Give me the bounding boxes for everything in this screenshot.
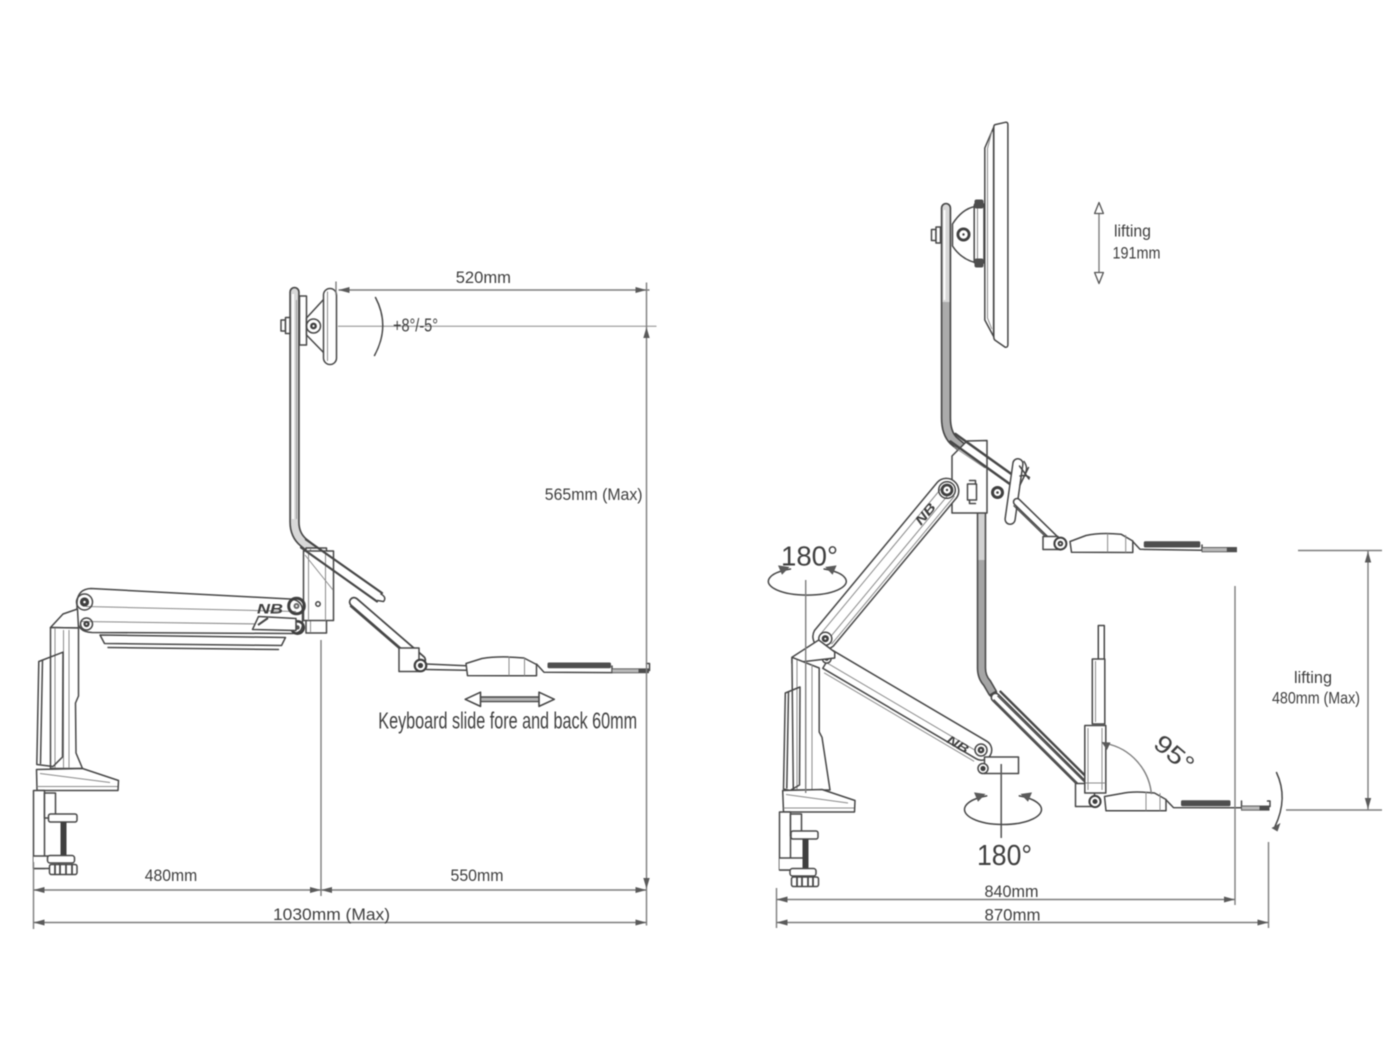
svg-text:180°: 180° [977,840,1032,872]
svg-text:550mm: 550mm [451,866,504,885]
svg-text:840mm: 840mm [985,882,1039,901]
svg-text:480mm (Max): 480mm (Max) [1272,690,1360,708]
svg-text:565mm (Max): 565mm (Max) [545,485,643,504]
svg-text:520mm: 520mm [456,268,511,287]
svg-text:lifting: lifting [1294,669,1332,687]
svg-text:Keyboard slide fore and back 6: Keyboard slide fore and back 60mm [378,708,637,734]
svg-text:lifting: lifting [1114,223,1151,241]
svg-text:1030mm (Max): 1030mm (Max) [273,905,390,924]
svg-text:191mm: 191mm [1113,244,1161,263]
svg-text:+8°/-5°: +8°/-5° [393,316,438,336]
svg-text:480mm: 480mm [145,866,197,885]
svg-text:870mm: 870mm [985,906,1041,925]
svg-text:NB: NB [257,601,283,617]
